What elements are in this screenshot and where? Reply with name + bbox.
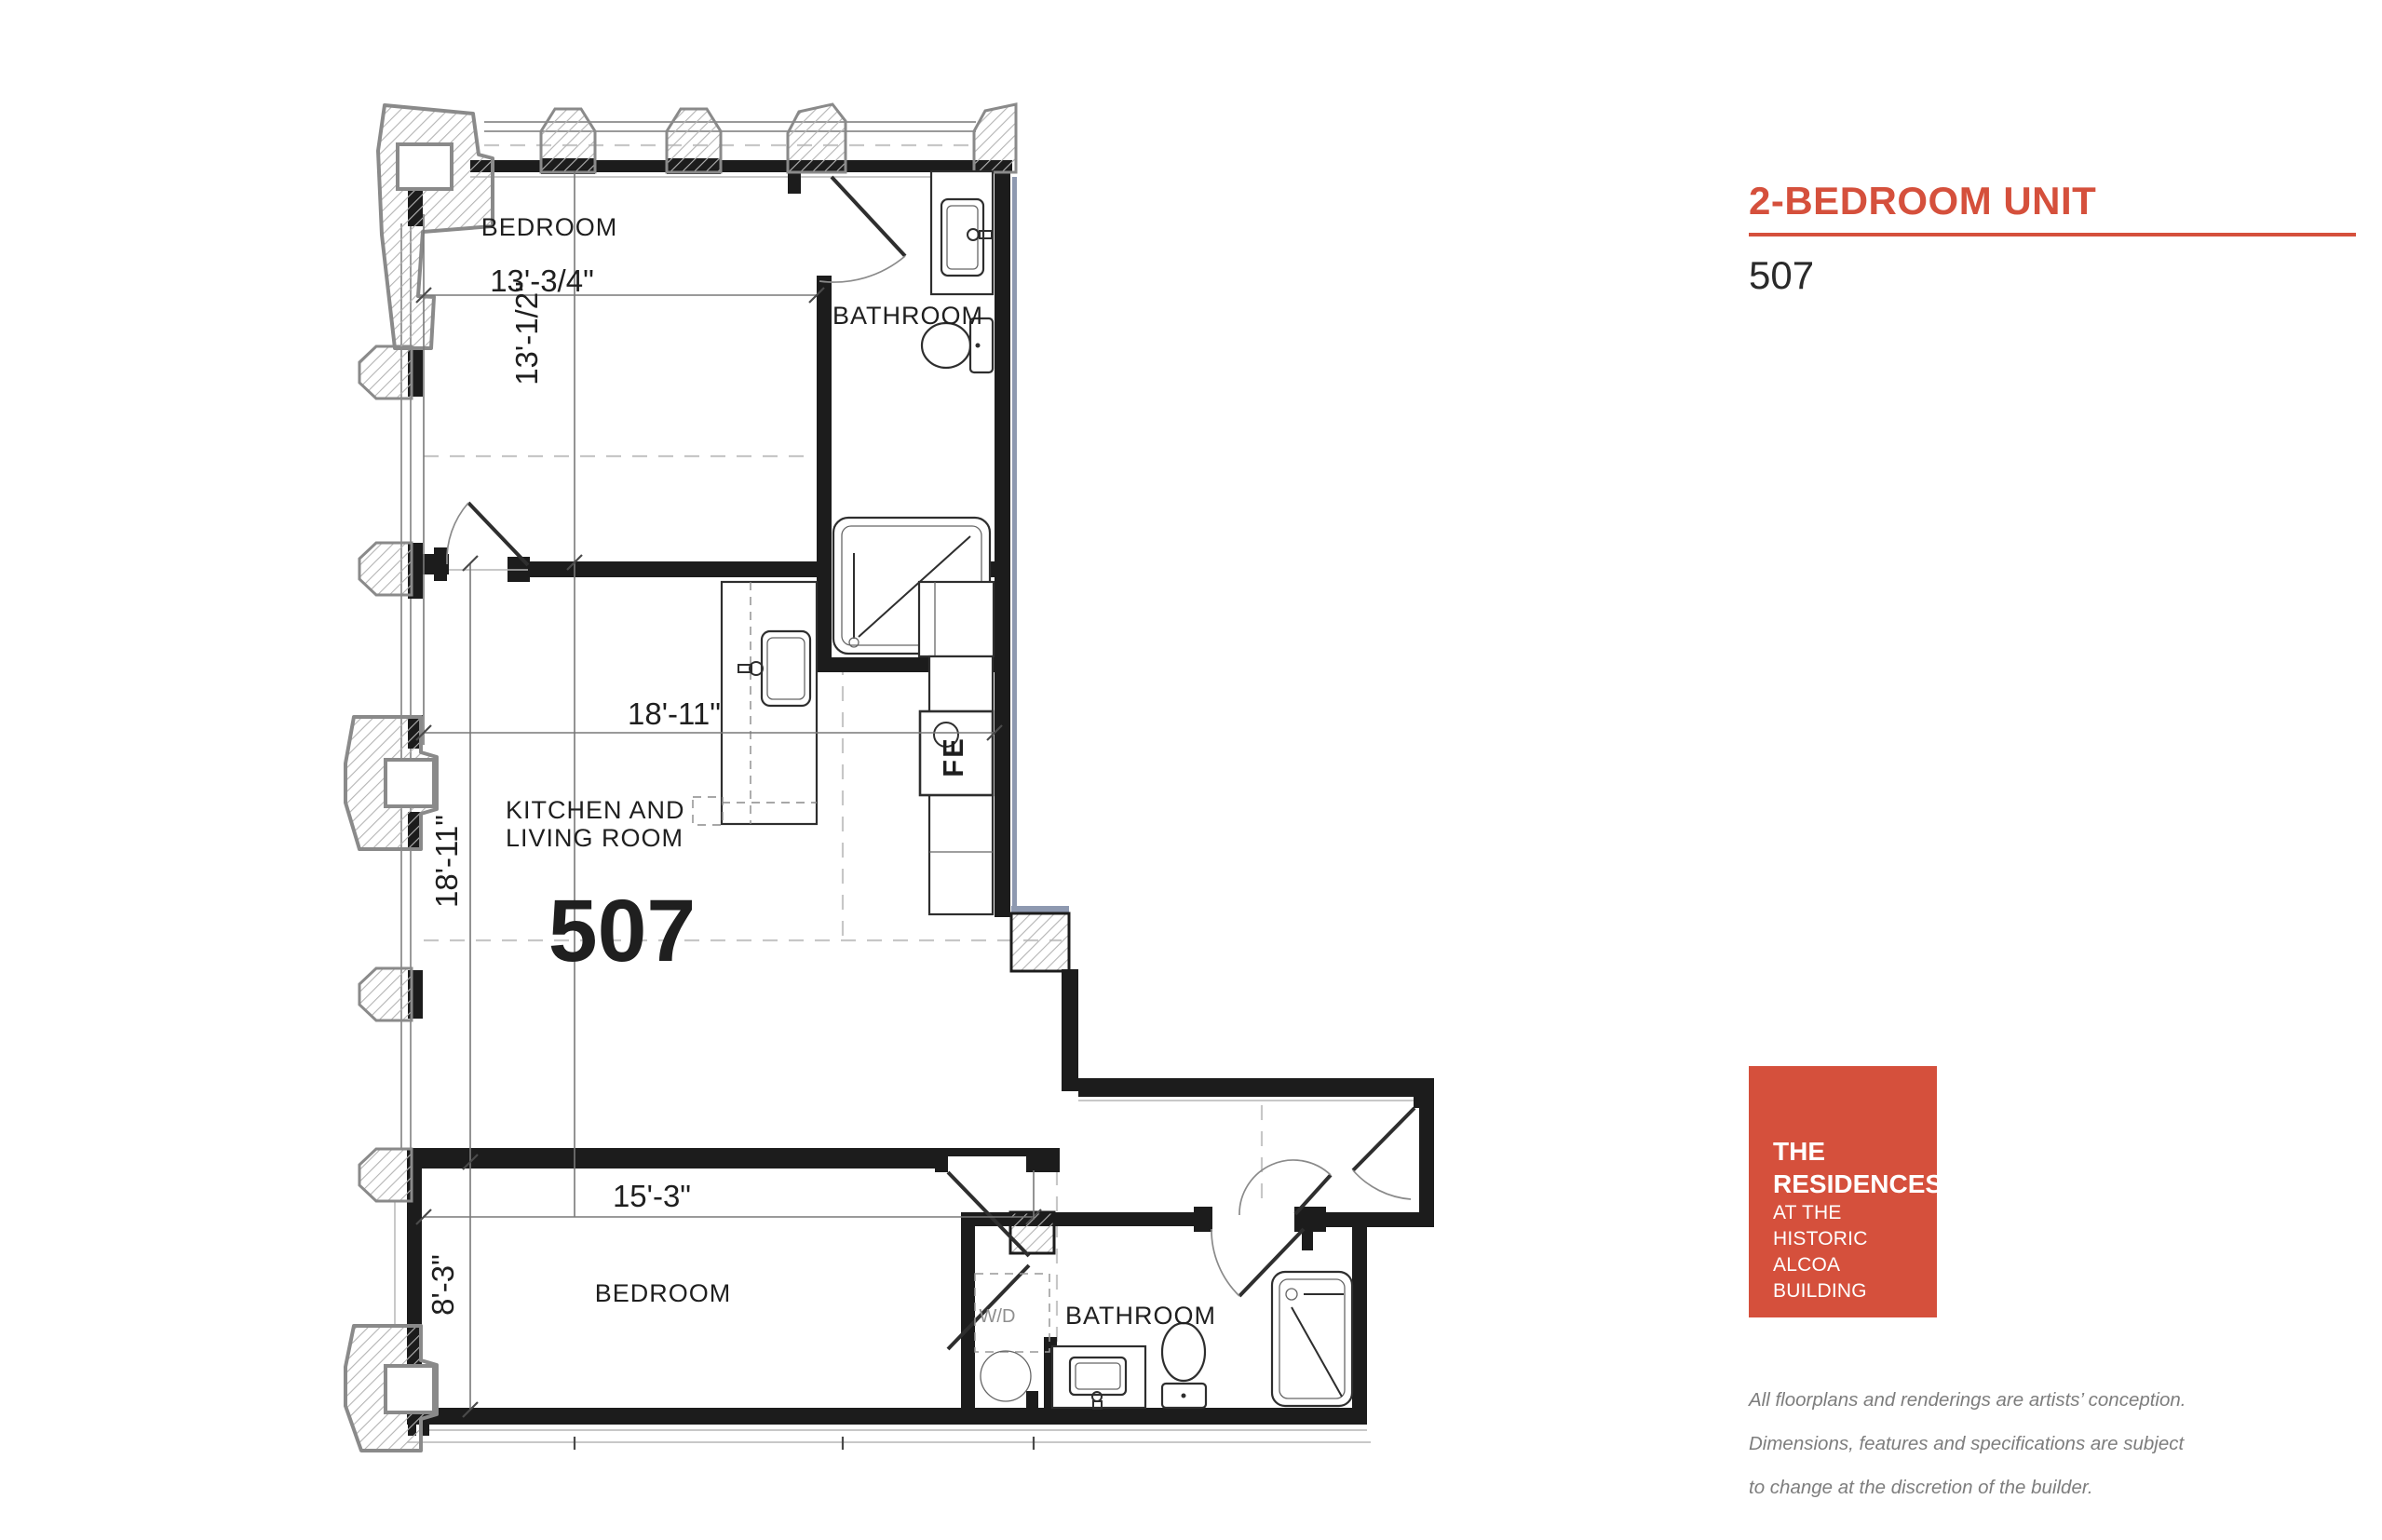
entry-door-leaf bbox=[1353, 1108, 1414, 1170]
bedroom-top-label: BEDROOM bbox=[481, 213, 618, 241]
washer-dryer-label: W/D bbox=[980, 1306, 1016, 1327]
top-right-corner-pillar bbox=[974, 104, 1016, 172]
kitchen-label-line1: KITCHEN AND bbox=[506, 796, 685, 824]
wall-accent-line bbox=[1012, 177, 1017, 911]
disclaimer-line-1: All floorplans and renderings are artist… bbox=[1749, 1378, 2289, 1422]
vanity-top bbox=[931, 171, 993, 294]
bedroom-bottom-width-dim: 15'-3" bbox=[613, 1179, 691, 1213]
logo-line-alcoa: ALCOA BUILDING bbox=[1773, 1252, 1937, 1304]
left-pillar-4 bbox=[359, 1149, 412, 1201]
disclaimer-line-3: to change at the discretion of the build… bbox=[1749, 1466, 2289, 1509]
disclaimer: All floorplans and renderings are artist… bbox=[1749, 1378, 2289, 1509]
left-pillar-3 bbox=[359, 968, 412, 1020]
living-height-dim: 18'-11" bbox=[429, 815, 464, 908]
top-pillar-2 bbox=[667, 109, 721, 172]
toilet-bottom bbox=[1162, 1323, 1206, 1408]
kitchen-label-line2: LIVING ROOM bbox=[506, 824, 683, 852]
logo-line-the: THE bbox=[1773, 1135, 1937, 1168]
residences-logo: THE RESIDENCES AT THE HISTORIC ALCOA BUI… bbox=[1749, 1066, 1937, 1317]
kitchen-column bbox=[1011, 913, 1069, 971]
logo-line-historic: HISTORIC bbox=[1773, 1226, 1937, 1252]
bathroom-top-door-leaf bbox=[832, 177, 905, 256]
living-width-dim: 18'-11" bbox=[628, 696, 721, 731]
shower-bottom bbox=[1272, 1272, 1352, 1406]
logo-line-at-the: AT THE bbox=[1773, 1200, 1937, 1226]
unit-number-text: 507 bbox=[1749, 253, 2363, 298]
left-pillar-2 bbox=[359, 543, 412, 595]
bathroom-top-label: BATHROOM bbox=[832, 302, 983, 330]
unit-header: 2-BEDROOM UNIT 507 bbox=[1749, 179, 2363, 298]
vanity-bottom bbox=[1052, 1346, 1145, 1409]
fire-extinguisher-label: FE bbox=[937, 736, 969, 777]
disclaimer-line-2: Dimensions, features and specifications … bbox=[1749, 1422, 2289, 1466]
bathroom-bottom-label: BATHROOM bbox=[1065, 1302, 1216, 1330]
left-pillar-1 bbox=[359, 346, 412, 399]
floorplan-page: { "header": { "title": "2-BEDROOM UNIT",… bbox=[0, 0, 2382, 1540]
corner-pillar-top-left bbox=[378, 105, 493, 348]
logo-line-residences: RESIDENCES bbox=[1773, 1168, 1937, 1200]
columns-layer bbox=[1010, 913, 1069, 1253]
bedroom-top-height-dim: 13'-1/2" bbox=[509, 281, 544, 385]
washer-dryer-closet bbox=[975, 1274, 1049, 1401]
bedroom-bottom-label: BEDROOM bbox=[595, 1279, 732, 1307]
title-rule bbox=[1749, 233, 2356, 236]
unit-number-plan: 507 bbox=[548, 882, 697, 980]
bedroom-bottom-height-dim: 8'-3" bbox=[426, 1254, 460, 1316]
top-pillar-1 bbox=[541, 109, 595, 172]
page-title: 2-BEDROOM UNIT bbox=[1749, 179, 2363, 223]
top-pillar-3 bbox=[788, 104, 846, 172]
